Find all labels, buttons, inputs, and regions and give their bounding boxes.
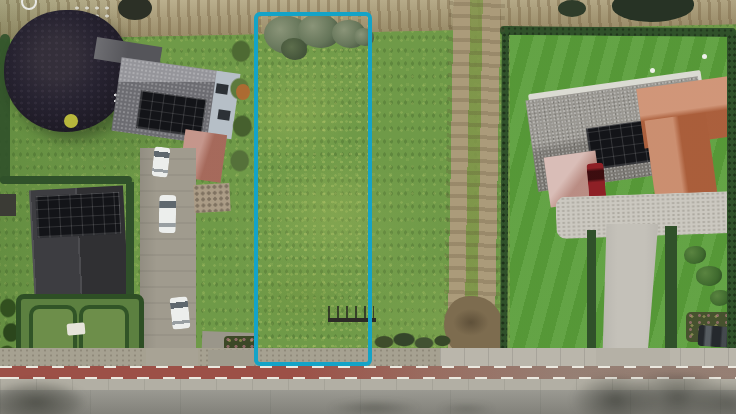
white-van xyxy=(159,195,177,233)
driveway-crossing xyxy=(596,348,670,366)
window xyxy=(215,83,228,95)
orange-shrub xyxy=(236,84,250,100)
tree-shadow xyxy=(316,398,432,414)
white-car xyxy=(151,146,170,178)
yellow-shrub xyxy=(64,114,78,128)
parcel-boundary-overlay xyxy=(254,12,372,366)
patio xyxy=(193,183,230,213)
garden-bench xyxy=(67,322,86,336)
tree-canopy xyxy=(558,0,586,17)
shed xyxy=(0,194,16,216)
aerial-photo xyxy=(0,0,736,414)
concrete-verge xyxy=(440,348,736,366)
tree-shadow xyxy=(430,402,502,414)
white-car xyxy=(169,296,190,330)
garden-vegetation xyxy=(228,34,254,178)
hedge xyxy=(587,230,596,354)
hedge xyxy=(0,176,132,184)
driveway-crossing xyxy=(146,348,198,366)
hedge xyxy=(727,34,736,356)
lawn-object xyxy=(650,68,655,73)
solar-panel-array xyxy=(35,192,121,238)
lane-dashed-line xyxy=(0,366,736,368)
left-second-house-roof xyxy=(29,186,129,307)
lawn-object xyxy=(702,54,707,59)
hedge xyxy=(665,226,677,358)
path-crossing xyxy=(208,350,254,366)
